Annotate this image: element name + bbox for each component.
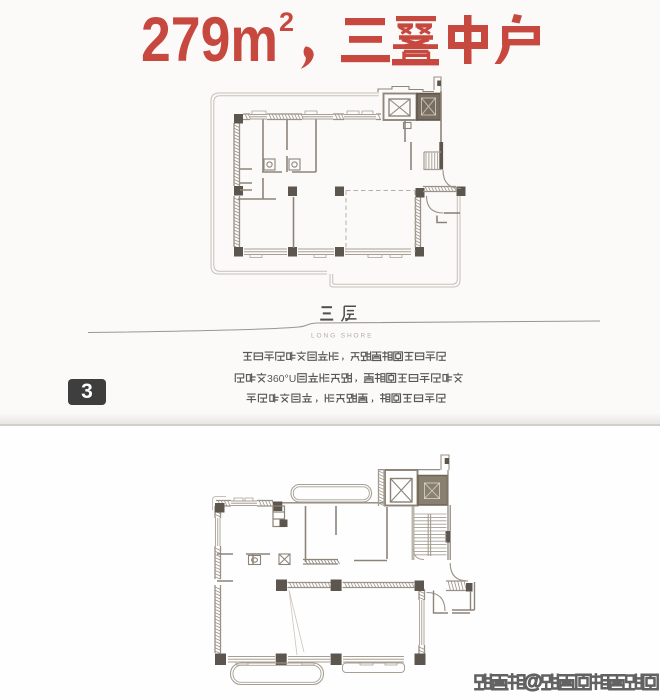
svg-text:279m: 279m bbox=[141, 5, 278, 75]
svg-text:2: 2 bbox=[279, 7, 294, 37]
svg-text:LONG SHORE: LONG SHORE bbox=[311, 333, 373, 340]
svg-text:@: @ bbox=[523, 671, 543, 693]
svg-text:360°U: 360°U bbox=[267, 373, 296, 385]
